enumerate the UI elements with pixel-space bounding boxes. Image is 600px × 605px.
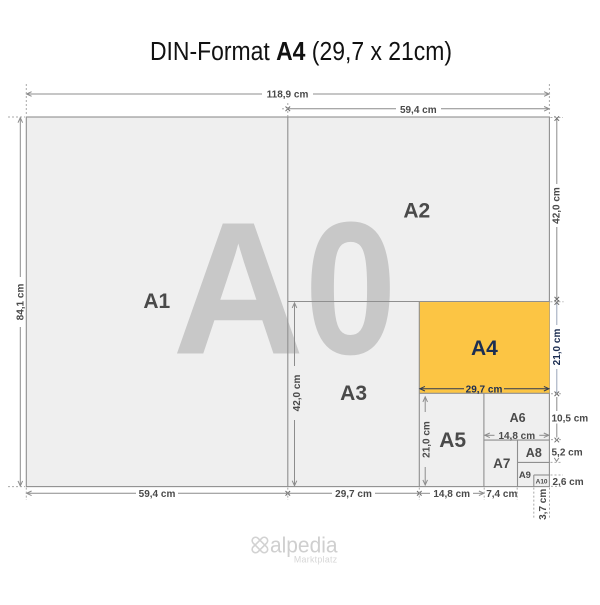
svg-text:21,0 cm: 21,0 cm (422, 421, 433, 458)
svg-text:2,6 cm: 2,6 cm (553, 477, 584, 488)
svg-text:29,7 cm: 29,7 cm (466, 384, 503, 395)
svg-text:10,5 cm: 10,5 cm (552, 414, 589, 425)
svg-text:A1: A1 (143, 290, 170, 313)
svg-text:A5: A5 (439, 429, 466, 452)
svg-text:A7: A7 (493, 456, 510, 471)
svg-text:3,7 cm: 3,7 cm (538, 489, 549, 520)
svg-text:A10: A10 (536, 478, 548, 485)
svg-text:A6: A6 (510, 411, 526, 425)
svg-text:21,0 cm: 21,0 cm (552, 329, 563, 366)
svg-text:59,4 cm: 59,4 cm (139, 489, 176, 500)
svg-text:84,1 cm: 84,1 cm (15, 284, 26, 321)
svg-text:14,8 cm: 14,8 cm (433, 489, 470, 500)
svg-text:42,0 cm: 42,0 cm (552, 187, 563, 224)
svg-text:118,9 cm: 118,9 cm (267, 90, 309, 101)
svg-text:A4: A4 (471, 337, 498, 360)
svg-text:7,4 cm: 7,4 cm (486, 489, 517, 500)
svg-text:5,2 cm: 5,2 cm (552, 448, 583, 459)
svg-text:A9: A9 (519, 470, 531, 481)
svg-text:0: 0 (305, 182, 397, 394)
svg-text:DIN-Format A4 (29,7 x 21cm): DIN-Format A4 (29,7 x 21cm) (150, 38, 452, 66)
svg-text:A: A (172, 184, 304, 395)
svg-text:14,8 cm: 14,8 cm (498, 431, 535, 442)
svg-text:A8: A8 (526, 446, 542, 460)
svg-text:59,4 cm: 59,4 cm (400, 105, 437, 116)
svg-text:A2: A2 (403, 199, 430, 222)
svg-text:Marktplatz: Marktplatz (294, 554, 338, 564)
svg-text:42,0 cm: 42,0 cm (292, 375, 303, 412)
svg-text:A3: A3 (340, 382, 367, 405)
svg-text:29,7 cm: 29,7 cm (335, 489, 372, 500)
